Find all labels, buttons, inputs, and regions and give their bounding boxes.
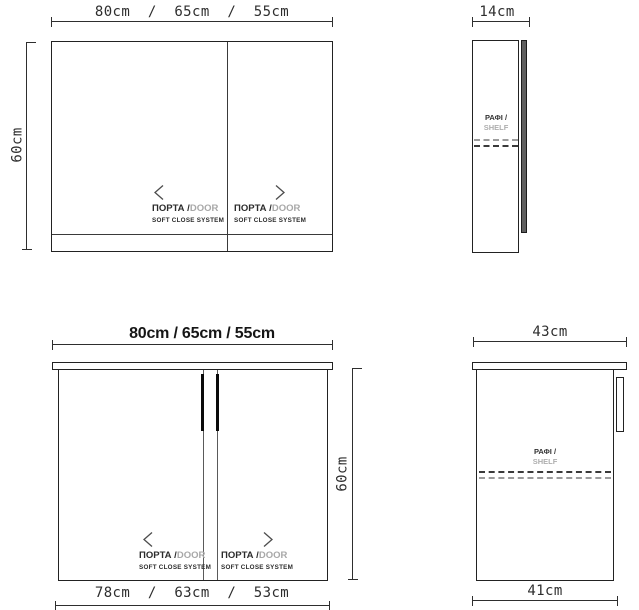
base-front-left-door-label: ΠΟΡΤΑ /DOOR SOFT CLOSE SYSTEM [139, 531, 211, 571]
wall-side-depth-dim-line [472, 21, 530, 22]
door-open-left-icon [152, 184, 166, 201]
base-cabinet-side-outline [476, 369, 614, 581]
base-side-bottom-depth-dim-line [472, 600, 618, 601]
dim-tick [332, 340, 333, 350]
wall-side-shelf-dashed-line [474, 145, 518, 147]
door-sublabel: SOFT CLOSE SYSTEM [139, 564, 211, 571]
dim-tick [617, 596, 618, 606]
base-side-shelf-label-en: SHELF [533, 458, 558, 466]
door-open-left-icon [141, 531, 155, 548]
dim-tick [55, 601, 56, 610]
base-front-right-door-handle [216, 374, 219, 431]
base-front-width-dim-line [52, 344, 333, 345]
door-label-gr: ΠΟΡΤΑ / [139, 550, 177, 561]
dim-tick [352, 368, 362, 369]
dim-tick [26, 42, 36, 43]
dim-tick [529, 17, 530, 27]
base-side-shelf-label-gr: ΡΑΦΙ / [534, 448, 556, 456]
door-label-en: DOOR [177, 550, 206, 561]
base-front-height-label: 60cm [336, 456, 351, 491]
dim-tick [329, 601, 330, 610]
wall-front-door-divider [227, 42, 228, 251]
base-front-right-door-label: ΠΟΡΤΑ /DOOR SOFT CLOSE SYSTEM [221, 531, 293, 571]
dim-tick [348, 579, 358, 580]
door-label-gr: ΠΟΡΤΑ / [221, 550, 259, 561]
door-sublabel: SOFT CLOSE SYSTEM [234, 217, 306, 224]
wall-front-right-door-label: ΠΟΡΤΑ /DOOR SOFT CLOSE SYSTEM [234, 184, 306, 224]
dim-tick [51, 17, 52, 27]
door-label-en: DOOR [259, 550, 288, 561]
base-front-carcass-width-label: 78cm / 63cm / 53cm [95, 586, 289, 601]
base-front-width-label: 80cm / 65cm / 55cm [129, 325, 275, 342]
wall-front-width-dim-line [51, 21, 333, 22]
dim-tick [473, 337, 474, 347]
dim-tick [22, 249, 32, 250]
base-front-carcass-width-dim-line [55, 605, 330, 606]
base-side-top-depth-dim-line [473, 341, 627, 342]
door-sublabel: SOFT CLOSE SYSTEM [221, 564, 293, 571]
dim-tick [52, 340, 53, 350]
wall-side-door-panel [521, 40, 527, 233]
wall-side-depth-label: 14cm [479, 5, 514, 20]
door-label-en: DOOR [190, 203, 219, 214]
door-open-right-icon [273, 184, 287, 201]
dim-tick [626, 337, 627, 347]
door-label: ΠΟΡΤΑ /DOOR [221, 551, 287, 561]
base-side-shelf-dashed-line [479, 471, 611, 473]
dim-tick [332, 17, 333, 27]
wall-side-shelf-label-gr: ΡΑΦΙ / [485, 114, 507, 122]
base-front-left-door-handle [201, 374, 204, 431]
base-side-shelf-dashed-line [479, 477, 611, 479]
door-label: ΠΟΡΤΑ /DOOR [152, 204, 218, 214]
wall-front-left-door-label: ΠΟΡΤΑ /DOOR SOFT CLOSE SYSTEM [152, 184, 224, 224]
wall-front-height-dim-line [26, 42, 27, 250]
dim-tick [472, 596, 473, 606]
door-label: ΠΟΡΤΑ /DOOR [234, 204, 300, 214]
base-side-bottom-depth-label: 41cm [527, 584, 562, 599]
technical-drawing-canvas: 80cm / 65cm / 55cm 60cm ΠΟΡΤΑ /DOOR SOFT… [0, 0, 639, 610]
door-sublabel: SOFT CLOSE SYSTEM [152, 217, 224, 224]
wall-side-shelf-dashed-line [474, 139, 518, 141]
wall-front-height-label: 60cm [11, 127, 26, 162]
wall-side-shelf-label-en: SHELF [484, 124, 509, 132]
wall-front-bottom-rail [52, 234, 332, 235]
base-side-top-depth-label: 43cm [532, 325, 567, 340]
door-label-gr: ΠΟΡΤΑ / [234, 203, 272, 214]
door-label-gr: ΠΟΡΤΑ / [152, 203, 190, 214]
door-open-right-icon [261, 531, 275, 548]
dim-tick [472, 17, 473, 27]
base-front-height-dim-line [352, 368, 353, 580]
base-side-door-handle [616, 377, 624, 432]
wall-front-width-label: 80cm / 65cm / 55cm [95, 5, 289, 20]
door-label-en: DOOR [272, 203, 301, 214]
door-label: ΠΟΡΤΑ /DOOR [139, 551, 205, 561]
